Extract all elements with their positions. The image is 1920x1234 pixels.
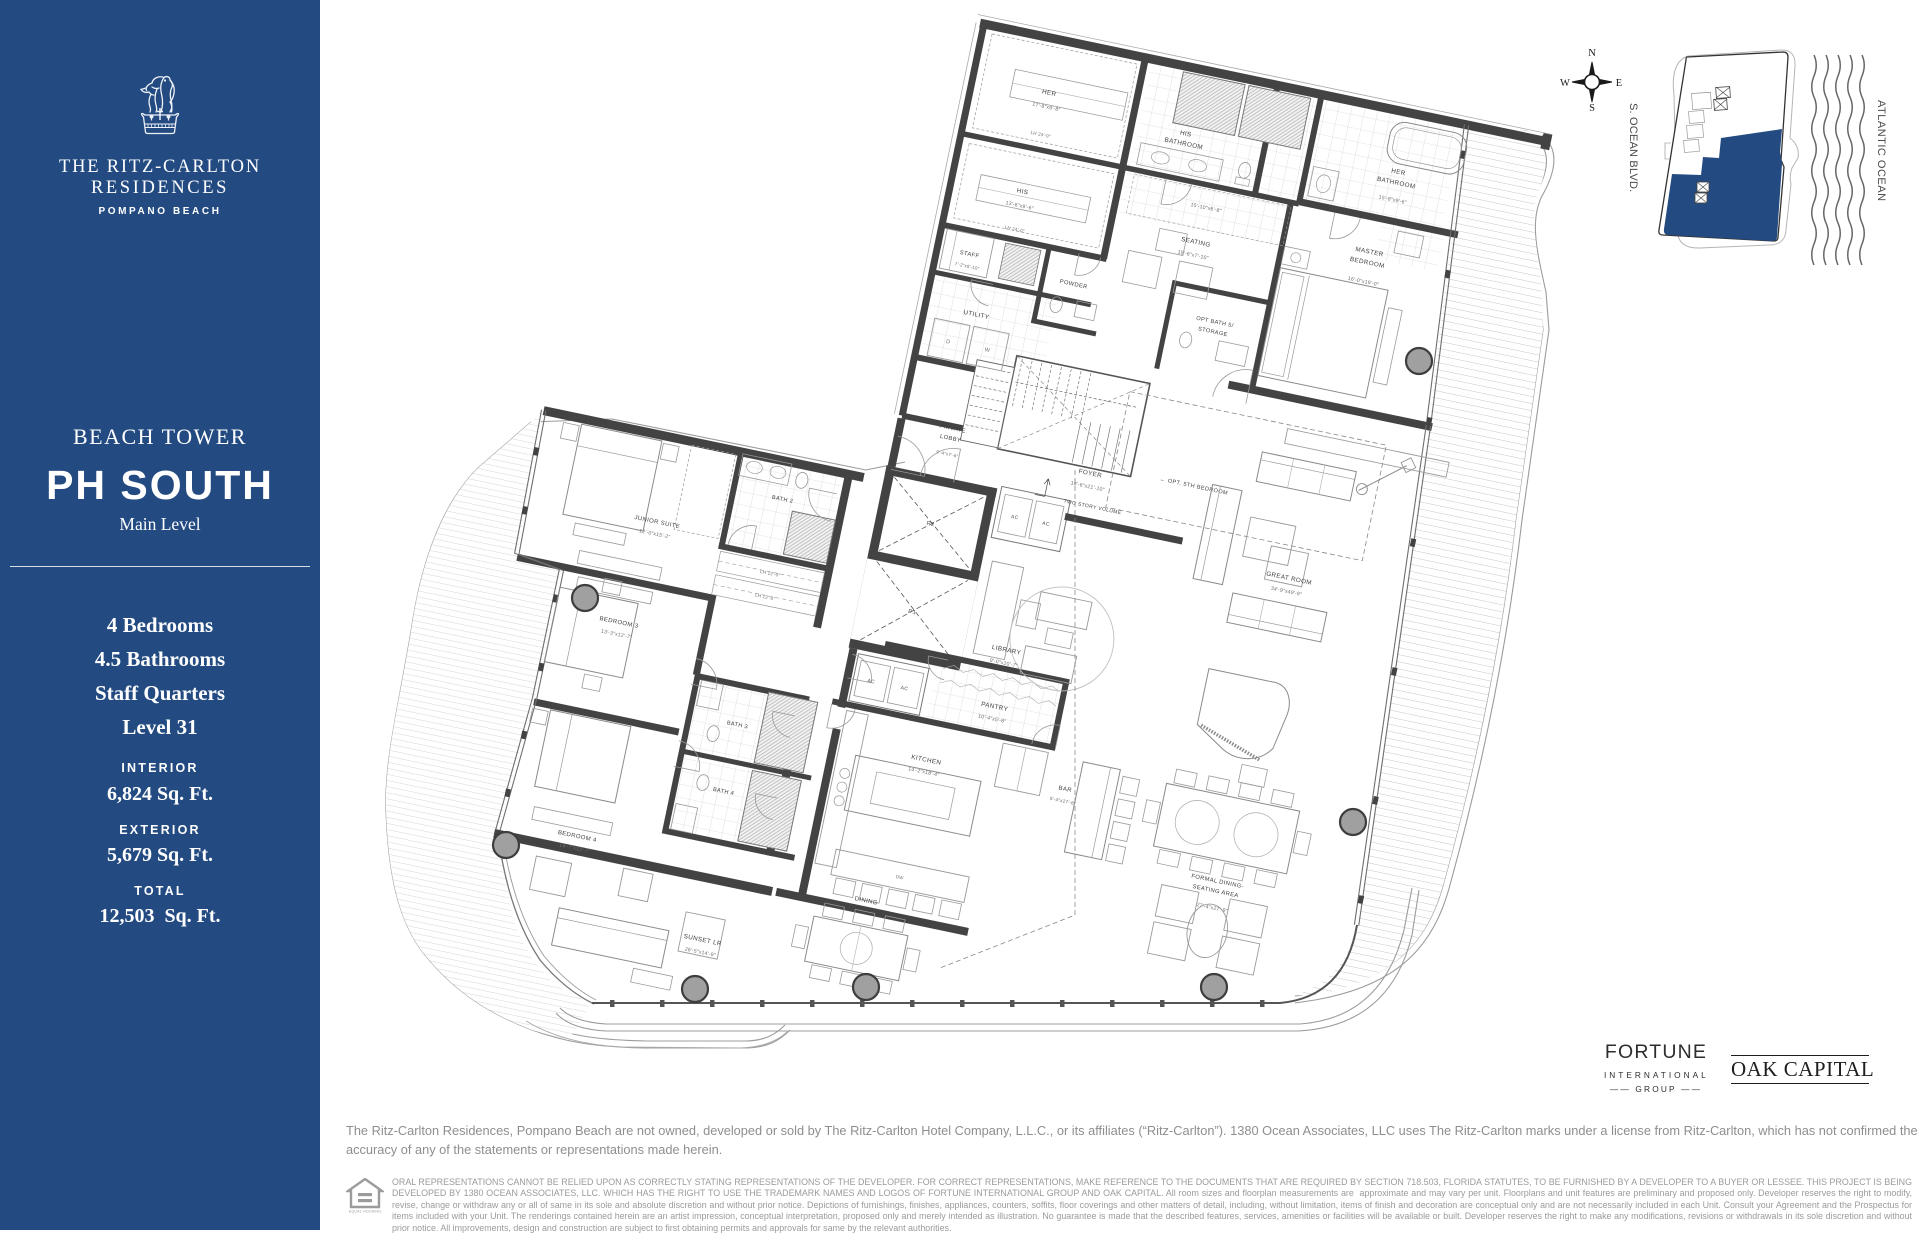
svg-text:POWDER: POWDER	[1059, 279, 1088, 291]
svg-text:34′-9″x49′-9″: 34′-9″x49′-9″	[1270, 586, 1302, 598]
svg-text:STORAGE: STORAGE	[1197, 326, 1228, 338]
svg-text:12′-0″x15′-2″: 12′-0″x15′-2″	[639, 528, 671, 540]
svg-text:ATLANTIC OCEAN: ATLANTIC OCEAN	[1875, 100, 1887, 202]
svg-text:SUNSET LR: SUNSET LR	[683, 933, 722, 948]
svg-text:W: W	[1560, 78, 1570, 89]
svg-text:S: S	[1589, 103, 1595, 114]
svg-text:15′-6″x7′-10″: 15′-6″x7′-10″	[1177, 249, 1209, 261]
svg-text:EQUAL HOUSING: EQUAL HOUSING	[349, 1210, 381, 1214]
svg-text:HER: HER	[1041, 88, 1057, 98]
svg-text:LH 24′-0″: LH 24′-0″	[1030, 130, 1051, 139]
svg-text:AC: AC	[900, 685, 909, 692]
svg-text:LH 12'-0": LH 12'-0"	[755, 592, 776, 601]
svg-text:← OPT. 5TH BEDROOM: ← OPT. 5TH BEDROOM	[1159, 477, 1228, 497]
svg-text:7′-2″x8′-10″: 7′-2″x8′-10″	[954, 261, 980, 271]
svg-text:17′-8″x9′-8″: 17′-8″x9′-8″	[1032, 102, 1061, 114]
svg-text:LIBRARY: LIBRARY	[991, 644, 1022, 657]
svg-text:HIS: HIS	[1016, 187, 1029, 196]
svg-text:S. OCEAN BLVD.: S. OCEAN BLVD.	[1627, 103, 1639, 192]
svg-text:KITCHEN: KITCHEN	[911, 754, 942, 767]
svg-text:16′-0″x19′-0″: 16′-0″x19′-0″	[1347, 276, 1379, 288]
svg-text:N: N	[1588, 48, 1596, 59]
svg-text:AC: AC	[1042, 521, 1051, 528]
svg-text:13′-3″x12′-7″: 13′-3″x12′-7″	[600, 629, 632, 641]
svg-text:BEDROOM 3: BEDROOM 3	[599, 616, 639, 630]
svg-text:13′-6″x9′-6″: 13′-6″x9′-6″	[1005, 200, 1034, 212]
svg-text:LH 12'-0": LH 12'-0"	[760, 569, 781, 578]
svg-text:14′-2″x18′-4″: 14′-2″x18′-4″	[908, 766, 940, 778]
svg-text:E: E	[1616, 78, 1622, 89]
svg-text:26′-5″x14′-9″: 26′-5″x14′-9″	[684, 946, 716, 958]
svg-text:AC: AC	[1010, 514, 1019, 521]
svg-text:LH 24′-0″: LH 24′-0″	[1004, 225, 1025, 234]
svg-text:STAFF: STAFF	[959, 250, 980, 260]
svg-text:LOBBY: LOBBY	[939, 434, 961, 444]
svg-text:DW: DW	[895, 874, 904, 881]
svg-text:9′-4″x7′-6″: 9′-4″x7′-6″	[936, 449, 959, 459]
svg-text:BAR: BAR	[1058, 785, 1073, 794]
svg-text:9′-4″x27′-8″: 9′-4″x27′-8″	[1049, 796, 1076, 807]
svg-text:TWO STORY VOLUME: TWO STORY VOLUME	[1063, 498, 1122, 516]
